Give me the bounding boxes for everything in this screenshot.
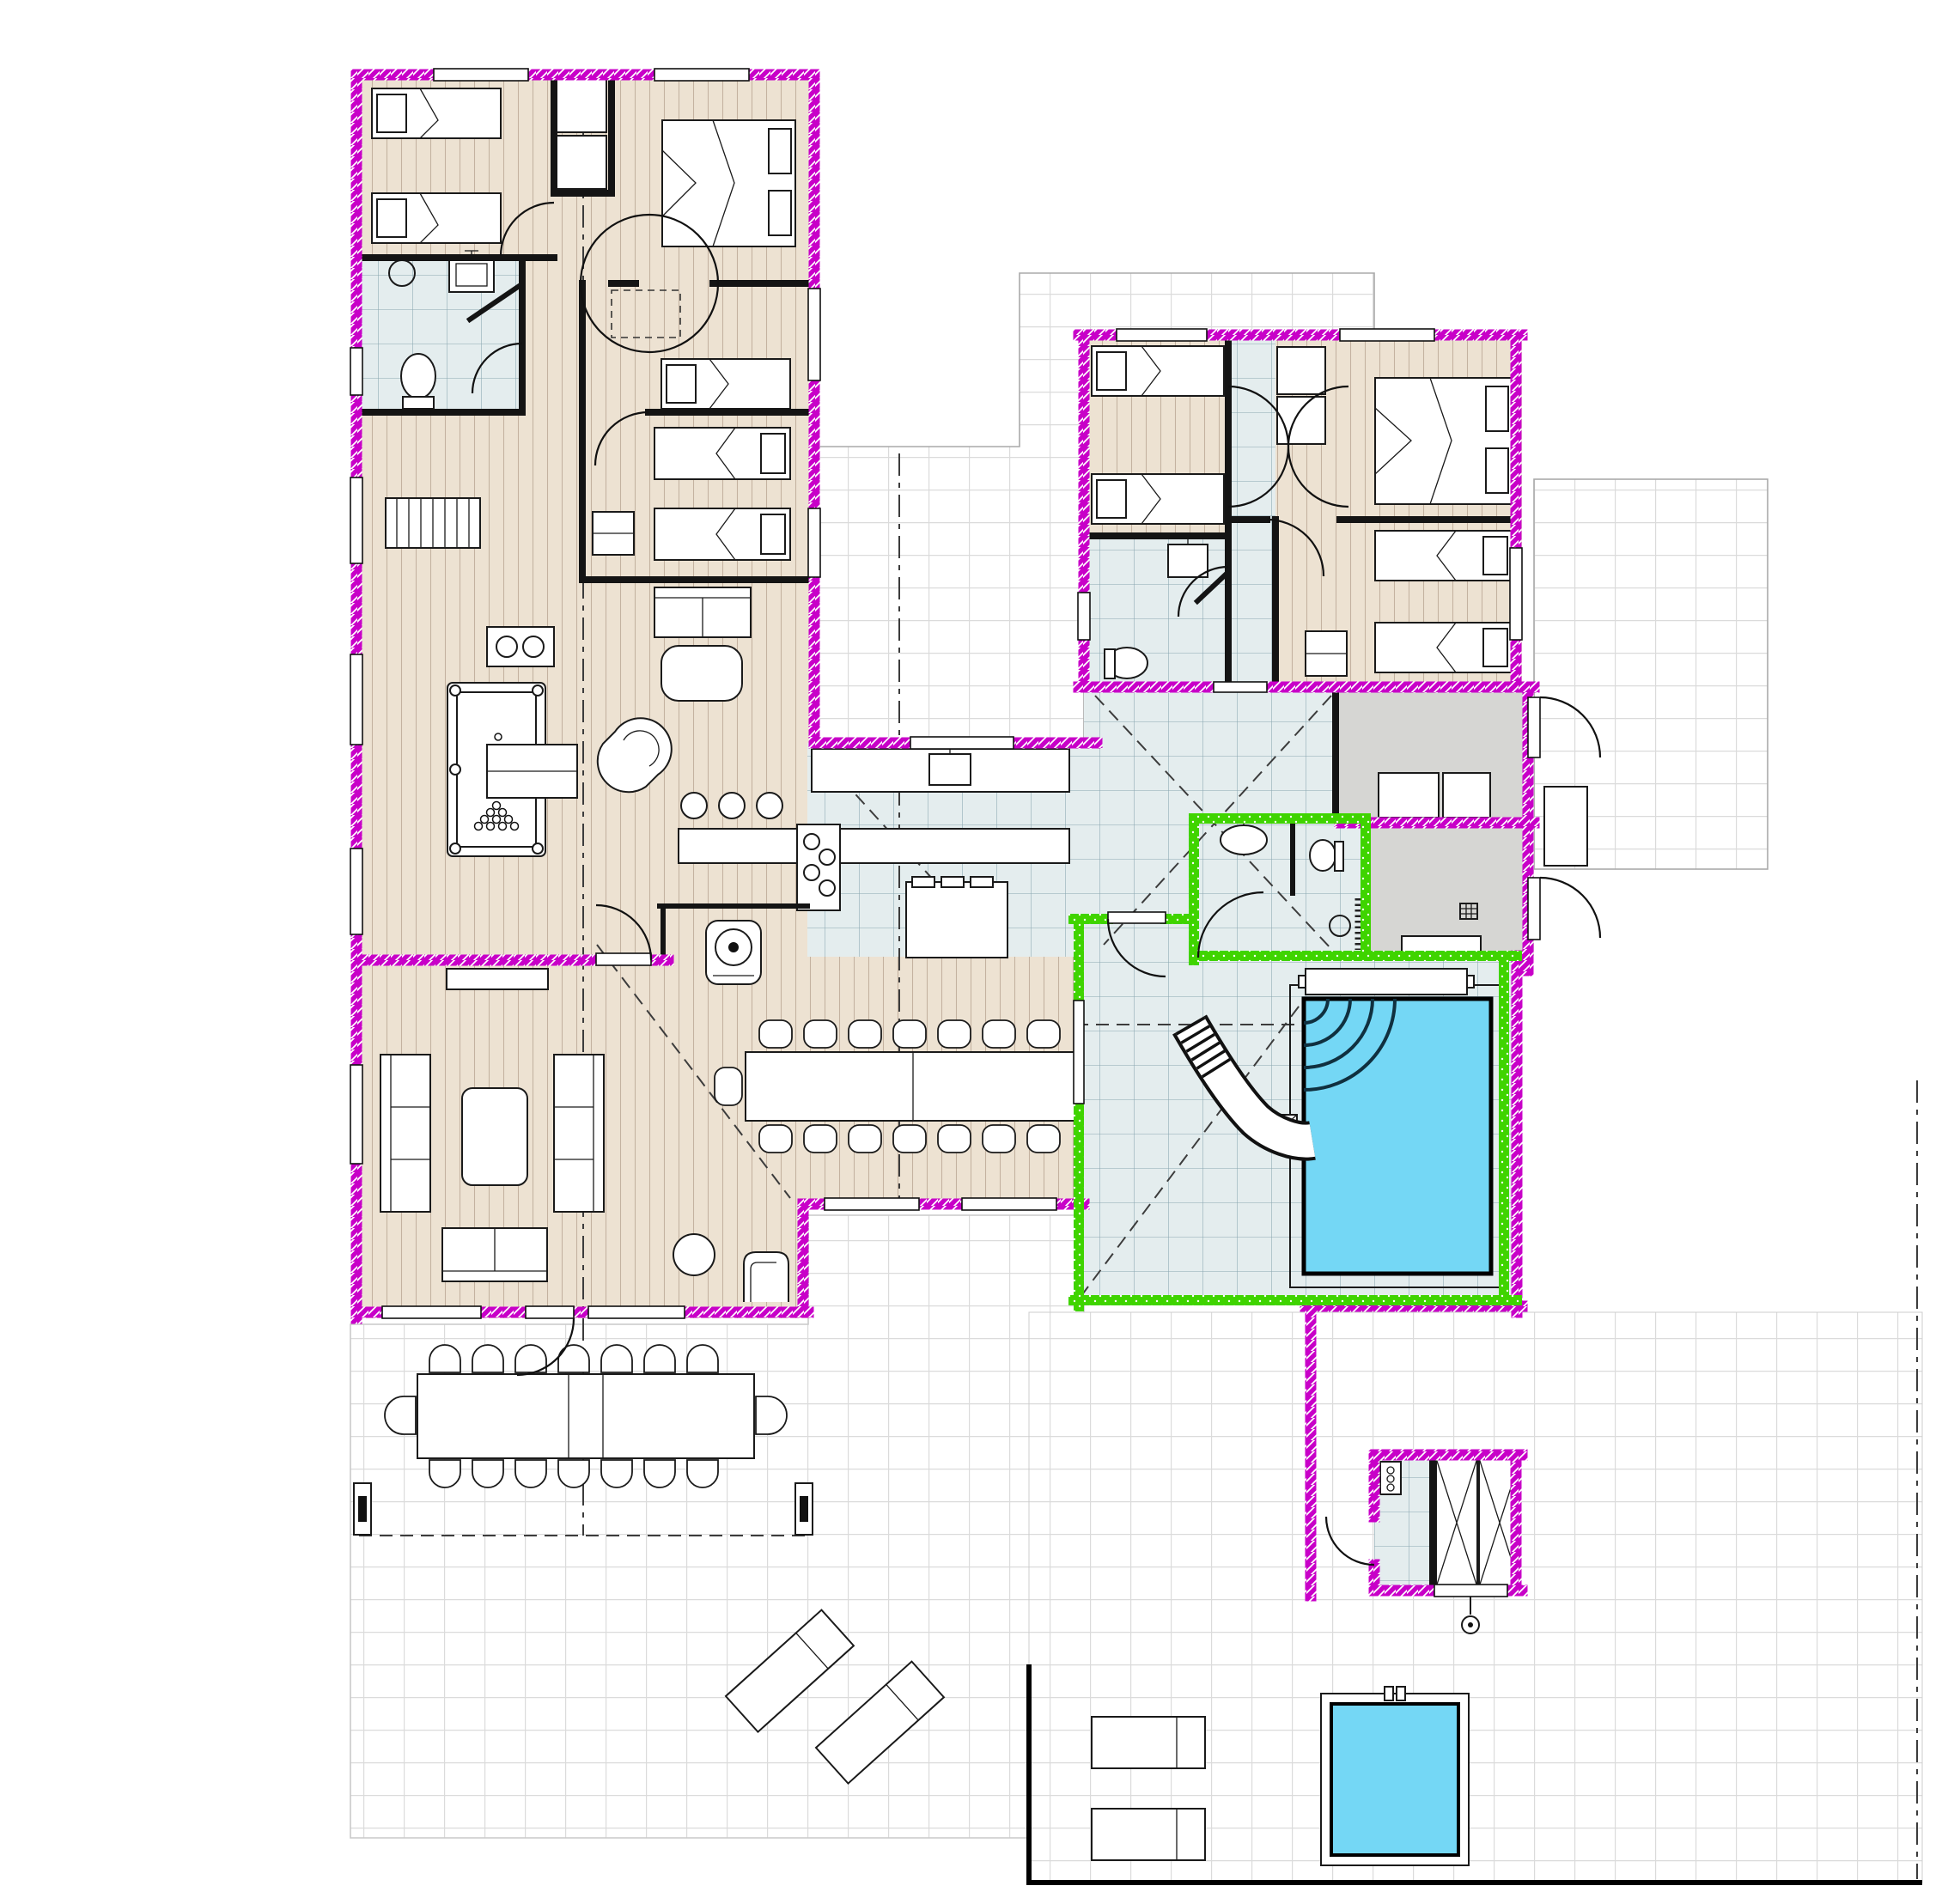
floor-bathroom-west [361,258,522,412]
side-table-round [673,1234,715,1275]
kitchen-cabinet [487,745,577,798]
nightstand [593,512,634,555]
stove [797,824,840,910]
floor-hall-east [1228,340,1275,687]
lounge-table [661,646,742,701]
terrace-table [1544,787,1587,866]
pool-bench [1299,969,1474,995]
storage-desk [1379,773,1439,818]
bed-single [1375,623,1513,672]
hot-tub-water [1331,1704,1458,1855]
kitchen-island [906,877,1007,958]
sideboard [447,969,548,989]
garden-terrace-east [1029,1312,1922,1883]
hot-tub [1321,1687,1469,1865]
bed-double [1375,378,1513,504]
chair-u [744,1252,788,1302]
bed-single [654,508,790,560]
lounge-door-leaf [596,953,651,965]
dining-table-outdoor [417,1374,754,1458]
sauna-heater [1380,1462,1401,1494]
sun-lounger [1092,1809,1205,1860]
bed-single [372,193,501,243]
toilet [1310,840,1343,871]
toilet [401,354,435,409]
sun-lounger [1092,1717,1205,1768]
sofa [554,1055,604,1212]
bed-single [1375,531,1513,581]
bed-single [1092,346,1224,396]
bed-single [372,88,501,138]
kitchen-sink-unit [487,627,554,666]
dining-table-indoor [746,1052,1081,1121]
terrace-door-leaf [526,1306,574,1318]
coffee-table [462,1088,527,1185]
kitchen-bar-counter [679,829,1069,863]
coat-rack [386,498,480,548]
nightstand [1306,631,1347,676]
sofa [442,1228,547,1281]
toilet [1105,648,1147,678]
bed-double [662,120,795,246]
bed-single [654,428,790,479]
floor-plan-drawing [0,0,1948,1904]
floor-plan-canvas [0,0,1948,1904]
terrace-post [354,1483,371,1535]
bar-stools [681,793,782,818]
terrace-post [795,1483,813,1535]
storage-desk [1443,773,1490,818]
sofa-2seat [654,587,751,637]
sofa [380,1055,430,1212]
bed-single [1092,474,1224,524]
locker [1436,1458,1477,1587]
fireplace-stove [706,921,761,984]
bed-single [661,359,790,409]
floor-pool-bathroom [1194,814,1366,960]
swimming-pool [1304,999,1491,1274]
entry-door-leaf [1108,912,1166,923]
